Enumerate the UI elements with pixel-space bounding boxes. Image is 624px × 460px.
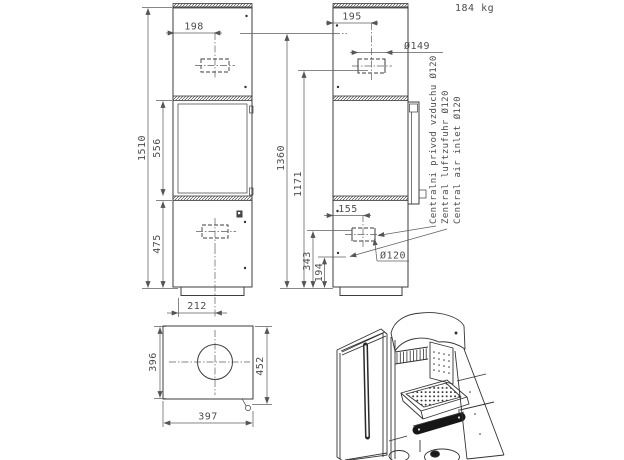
dim-plan-width: 397	[198, 412, 218, 423]
technical-drawing-sheet: 1510 556 475 198 212	[0, 0, 624, 460]
dim-plan-depth: 396	[148, 352, 159, 372]
dim-inlet-offset: 155	[338, 204, 358, 215]
dim-flue-diameter: Ø149	[404, 40, 430, 52]
note-english: Central air inlet Ø120	[452, 96, 463, 224]
front-plinth	[181, 287, 244, 296]
dim-front-center-offset: 212	[187, 301, 207, 312]
burner-pot	[425, 449, 460, 460]
screw	[244, 86, 246, 88]
dim-inlet-height-top: 343	[302, 251, 313, 271]
note-czech: Centralni privod vzduchu Ø120	[428, 55, 439, 224]
dim-front-base-height: 475	[152, 234, 163, 254]
screw	[337, 86, 339, 88]
front-view: 1510 556 475 198 212	[137, 4, 253, 319]
dim-flue-offset: 195	[342, 12, 362, 23]
dim-front-outlet-offset: 198	[184, 22, 204, 33]
iso-hood	[391, 313, 465, 351]
side-view: 195 Ø149 1360 1171 155 Ø120 343 194	[240, 4, 447, 296]
weight-label: 184 kg	[455, 3, 494, 14]
isometric-view	[337, 313, 504, 460]
screw	[244, 221, 246, 223]
dim-inlet-diameter: Ø120	[380, 250, 406, 262]
dim-height-flue: 1171	[293, 171, 304, 197]
dim-height-rear: 1360	[276, 145, 287, 171]
screw	[244, 267, 246, 269]
iso-open-door	[337, 329, 387, 460]
dim-inlet-height-bottom: 194	[314, 263, 325, 283]
front-door-frame	[178, 104, 247, 193]
rear-duct	[408, 102, 426, 204]
screw	[337, 252, 339, 254]
dim-plan-depth-total: 452	[255, 356, 266, 376]
screw	[245, 15, 247, 17]
dim-front-door-height: 556	[152, 138, 163, 158]
logo-plate	[237, 211, 243, 218]
screw	[336, 24, 338, 26]
dim-front-height: 1510	[137, 135, 148, 161]
plan-view: 396 452 397	[148, 326, 272, 427]
side-plinth	[340, 287, 402, 296]
note-german: Zentral luftzufuhr Ø120	[440, 90, 451, 224]
air-inlet-notes: Centralni privod vzduchu Ø120 Zentral lu…	[428, 55, 463, 224]
stove-dimension-drawing: 1510 556 475 198 212	[0, 0, 624, 460]
